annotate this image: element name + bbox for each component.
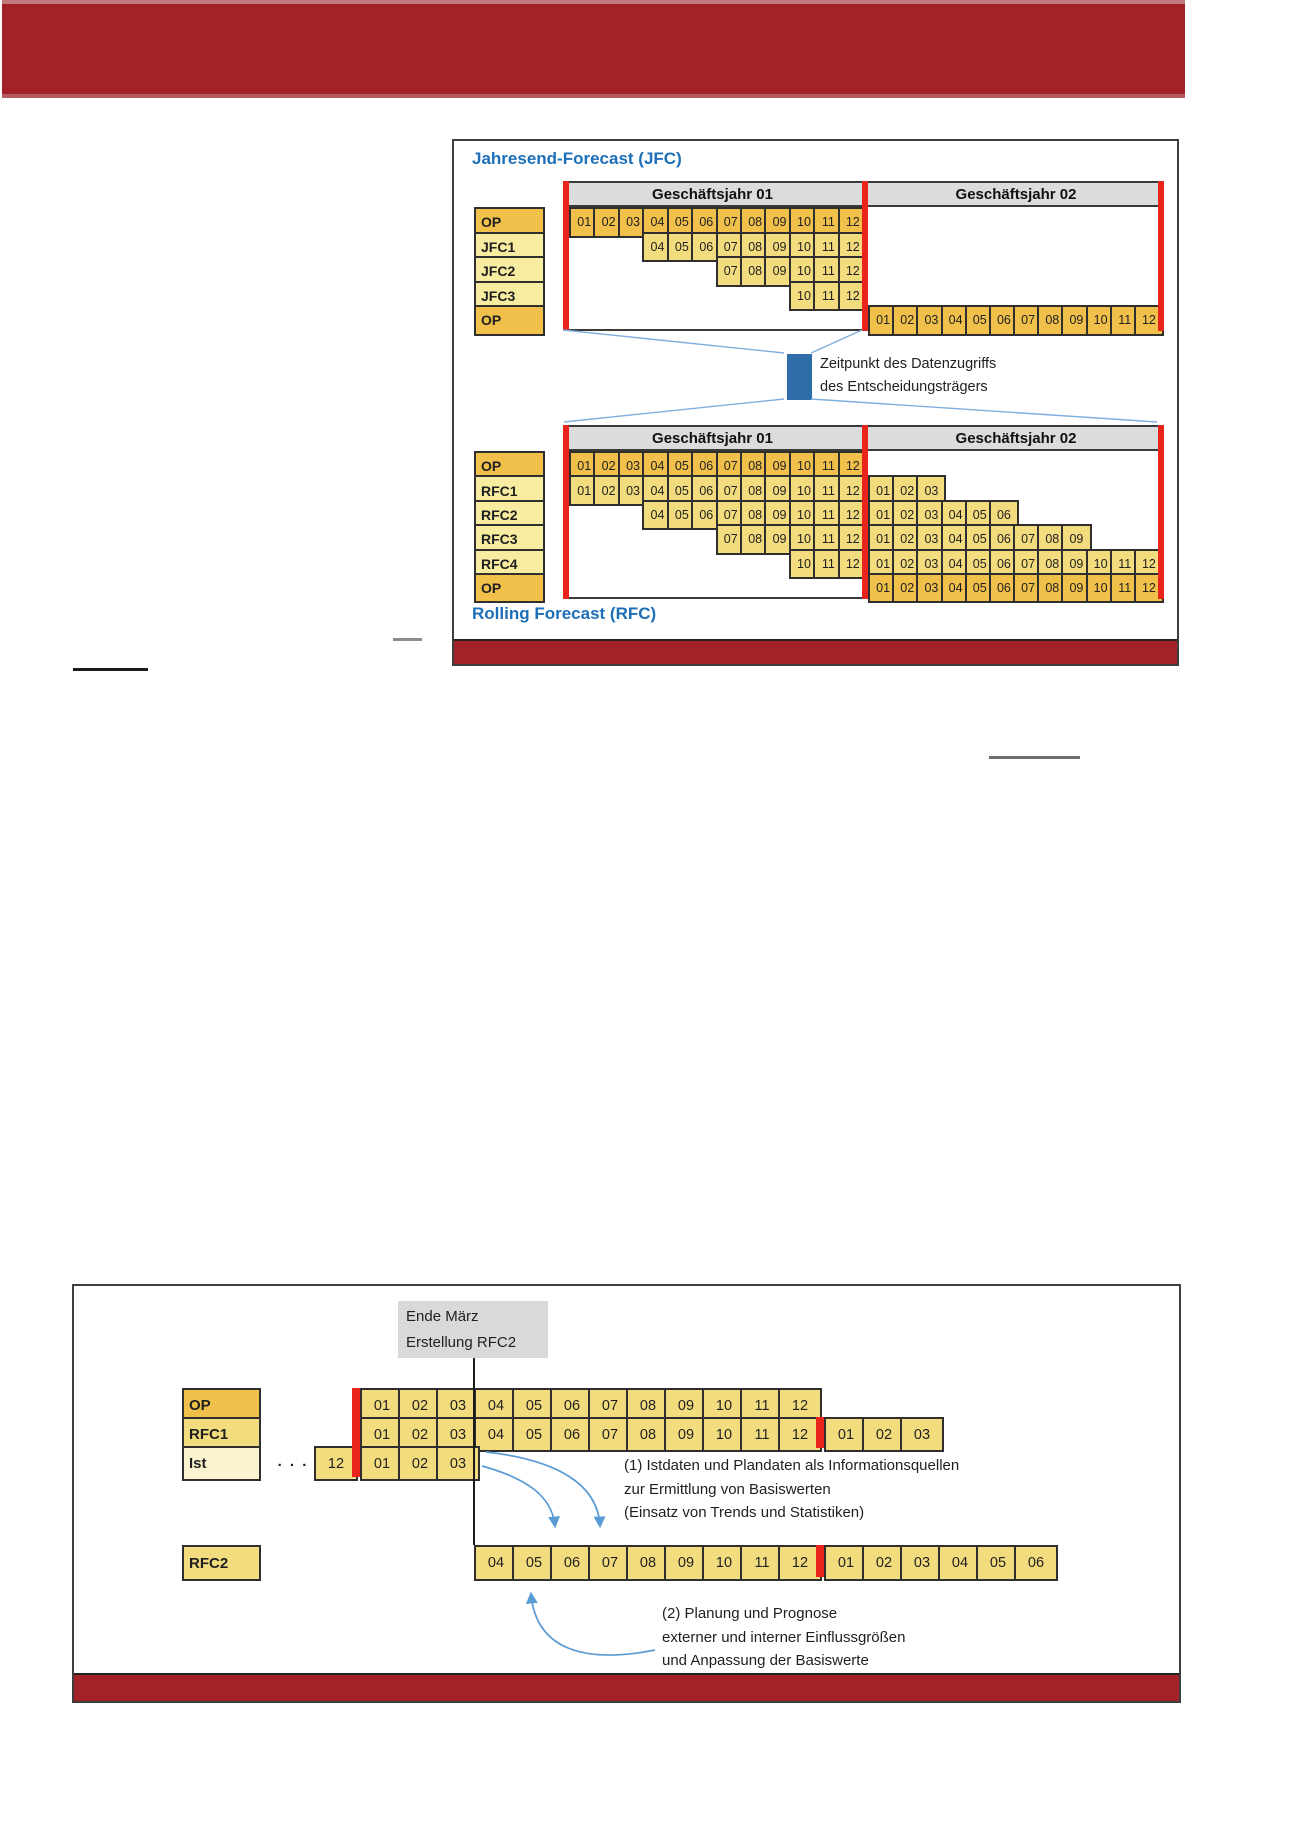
data-access-callout: Zeitpunkt des Datenzugriffs des Entschei… bbox=[820, 353, 996, 399]
period-marker bbox=[862, 181, 868, 331]
note1-line1: (1) Istdaten und Plandaten als Informati… bbox=[624, 1454, 959, 1478]
table-baseline bbox=[563, 597, 868, 599]
figure-footer-band bbox=[74, 1673, 1179, 1701]
top-banner bbox=[2, 0, 1185, 98]
note2-line1: (2) Planung und Prognose bbox=[662, 1602, 905, 1626]
stray-dash bbox=[73, 668, 148, 671]
year1-header: Geschäftsjahr 01 bbox=[563, 181, 862, 207]
callout-line1: Zeitpunkt des Datenzugriffs bbox=[820, 353, 996, 376]
figure-footer-band bbox=[454, 639, 1177, 664]
row-label-op: OP bbox=[474, 573, 545, 603]
note1-line3: (Einsatz von Trends und Statistiken) bbox=[624, 1501, 959, 1525]
event-timeline-line bbox=[473, 1358, 475, 1545]
stray-dash bbox=[393, 638, 422, 641]
note-planung: (2) Planung und Prognose externer und in… bbox=[662, 1602, 905, 1673]
note2-line3: und Anpassung der Basiswerte bbox=[662, 1649, 905, 1673]
year1-header: Geschäftsjahr 01 bbox=[563, 425, 862, 451]
event-line1: Ende März bbox=[406, 1304, 548, 1330]
month-cell: 06 bbox=[1014, 1545, 1058, 1581]
period-marker bbox=[862, 425, 868, 599]
jfc-title: Jahresend-Forecast (JFC) bbox=[472, 149, 682, 169]
document-page: Jahresend-Forecast (JFC) Geschäftsjahr 0… bbox=[0, 0, 1300, 1839]
note-istdaten: (1) Istdaten und Plandaten als Informati… bbox=[624, 1454, 959, 1525]
figure-forecast-comparison: Jahresend-Forecast (JFC) Geschäftsjahr 0… bbox=[452, 139, 1179, 666]
period-marker bbox=[1158, 425, 1164, 599]
row-label-rfc2: RFC2 bbox=[182, 1545, 261, 1581]
note1-line2: zur Ermittlung von Basiswerten bbox=[624, 1478, 959, 1502]
row-label-ist: Ist bbox=[182, 1446, 261, 1481]
rfc-title: Rolling Forecast (RFC) bbox=[472, 604, 656, 624]
ellipsis-label: . . . bbox=[276, 1446, 310, 1477]
year2-header: Geschäftsjahr 02 bbox=[868, 181, 1164, 207]
event-label-box: Ende März Erstellung RFC2 bbox=[398, 1301, 548, 1358]
period-marker bbox=[1158, 181, 1164, 331]
event-line2: Erstellung RFC2 bbox=[406, 1330, 548, 1356]
row-label-op: OP bbox=[474, 305, 545, 336]
period-marker bbox=[563, 181, 569, 331]
data-access-marker bbox=[787, 354, 812, 400]
period-marker bbox=[352, 1388, 360, 1477]
stray-dash bbox=[989, 756, 1080, 759]
month-cell: 03 bbox=[900, 1417, 944, 1452]
period-marker bbox=[816, 1545, 824, 1577]
year2-header: Geschäftsjahr 02 bbox=[868, 425, 1164, 451]
figure-rfc2-creation: Ende März Erstellung RFC2 OP010203040506… bbox=[72, 1284, 1181, 1703]
period-marker bbox=[563, 425, 569, 599]
period-marker bbox=[816, 1417, 824, 1448]
callout-line2: des Entscheidungsträgers bbox=[820, 376, 996, 399]
table-baseline bbox=[563, 329, 868, 331]
note2-line2: externer und interner Einflussgrößen bbox=[662, 1626, 905, 1650]
